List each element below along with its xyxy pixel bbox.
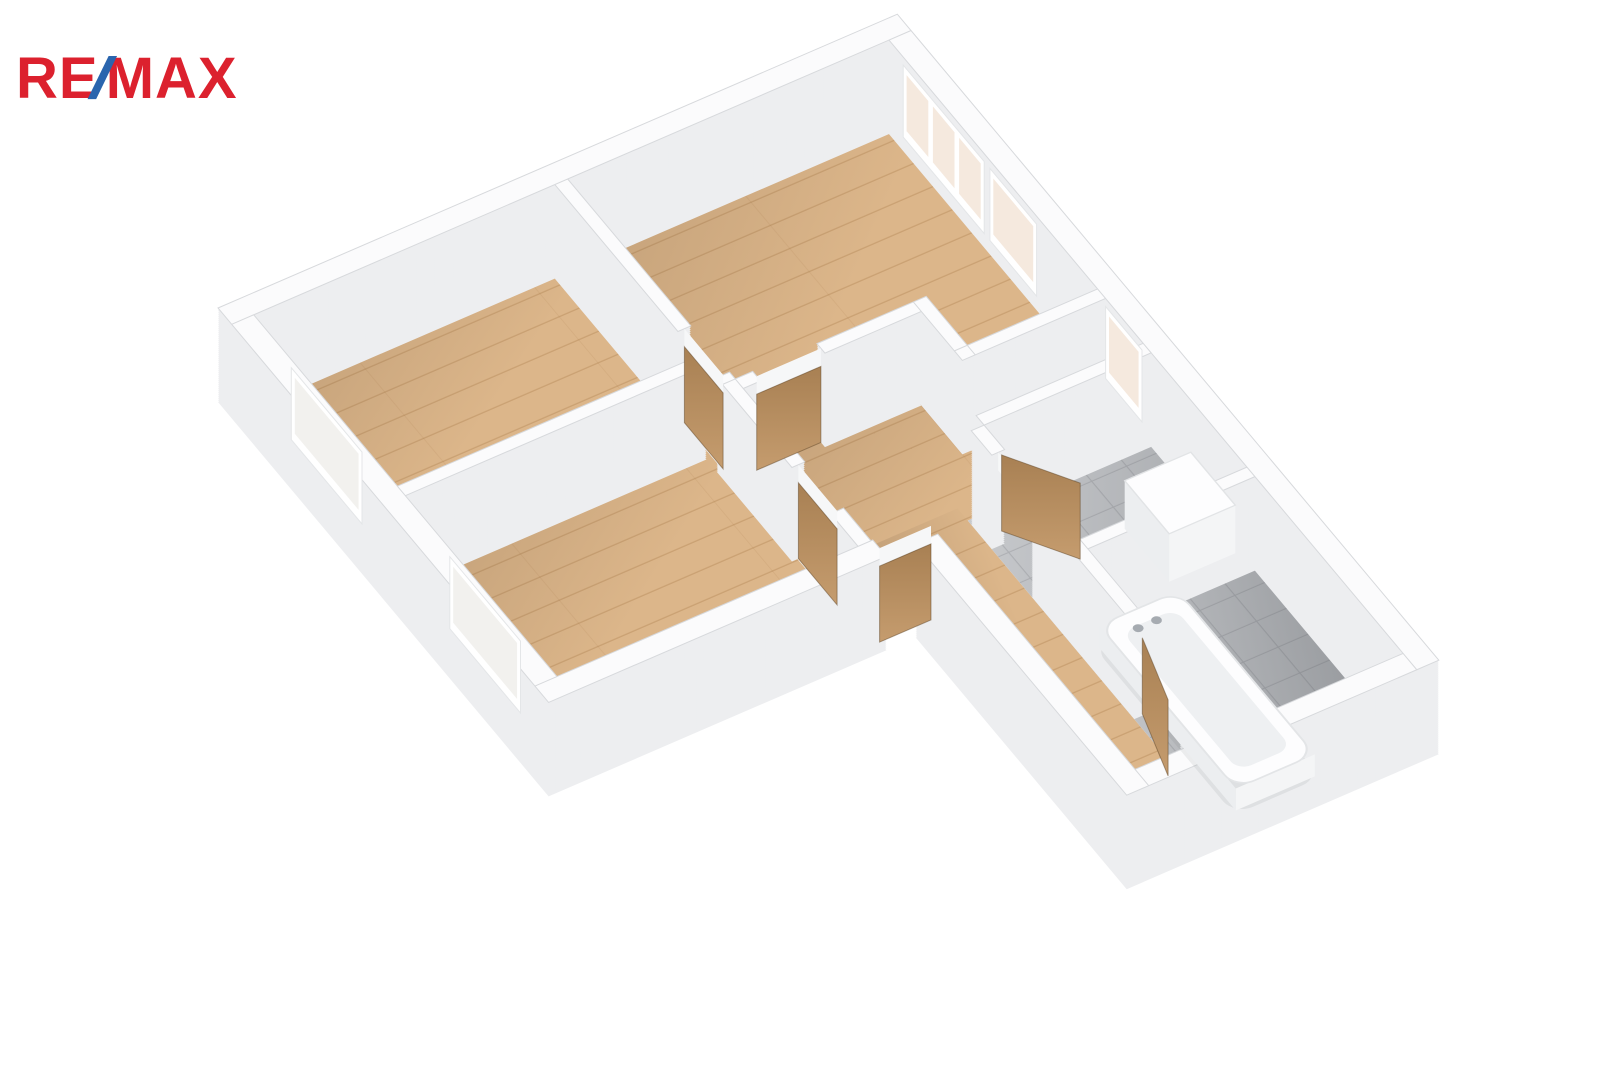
- floor-plan-render: [0, 0, 1598, 1065]
- remax-logo: RE/MAX: [16, 50, 238, 108]
- floor-plan-3d: [0, 0, 1598, 1065]
- logo-max: MAX: [106, 46, 238, 111]
